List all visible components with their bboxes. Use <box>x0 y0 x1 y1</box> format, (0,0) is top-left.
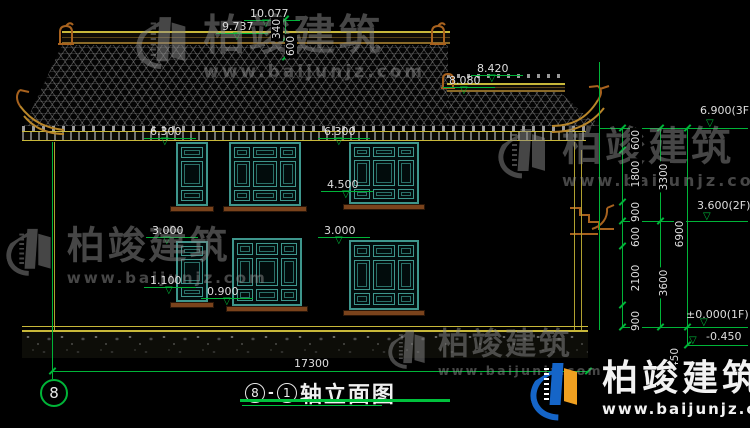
corner-logo-url: www.baijunjz.com <box>602 400 750 418</box>
right-level-label: 6.900(3F) <box>700 105 750 117</box>
window-pane <box>398 260 414 290</box>
dim-text: 900 <box>630 200 642 224</box>
window-pane <box>398 245 414 257</box>
lattice-window <box>229 142 301 206</box>
porch-bracket-icon <box>568 200 618 248</box>
window-pane <box>256 289 279 301</box>
level-label: 6.300 <box>150 126 182 138</box>
lattice-window <box>349 142 419 204</box>
window-pane <box>181 147 203 158</box>
baijun-watermark: 柏竣建筑www.baijunjz.com <box>6 226 268 287</box>
window-pane <box>373 147 396 157</box>
window-pane <box>354 260 370 290</box>
baijun-watermark: 柏竣建筑www.baijunjz.com <box>498 126 750 190</box>
level-triangle-icon: ▽ <box>689 336 697 346</box>
right-level-label: ±0.000(1F) <box>686 309 749 321</box>
level-triangle-icon: ▽ <box>223 297 231 307</box>
dim-text: 1800 <box>630 159 642 190</box>
title-underline-thin <box>242 405 382 406</box>
window-pane <box>253 190 277 201</box>
window-pane <box>354 293 370 305</box>
window-pane <box>237 289 253 301</box>
left-eave-tip-icon <box>12 84 66 136</box>
window-pane <box>373 293 396 305</box>
dim-text: 900 <box>630 309 642 333</box>
level-label: 9.737 <box>222 21 254 33</box>
window-sill <box>226 306 308 312</box>
window-pane <box>234 147 250 158</box>
level-label: 3.000 <box>324 225 356 237</box>
window-pane <box>398 147 414 157</box>
window-sill <box>343 204 425 210</box>
window-pane <box>373 260 396 290</box>
window-pane <box>281 258 297 287</box>
window-pane <box>281 243 297 255</box>
window-pane <box>181 190 203 201</box>
level-line <box>318 138 370 139</box>
axis-bubble-8: 8 <box>40 379 68 407</box>
level-line <box>144 138 196 139</box>
level-triangle-icon: ▽ <box>165 286 173 296</box>
window-pane <box>398 160 414 185</box>
ridge-ornament-left-icon <box>56 20 76 46</box>
baijun-logo-icon <box>136 14 193 73</box>
window-pane <box>373 160 396 185</box>
dim-text: 600 <box>630 225 642 249</box>
window-pane <box>354 245 370 257</box>
level-line <box>318 237 370 238</box>
window-pane <box>280 190 296 201</box>
ridge-ornament-right-icon <box>428 20 448 46</box>
dim-text: 6900 <box>674 219 686 250</box>
level-label: 0.900 <box>207 286 239 298</box>
level-label: 8.080 <box>449 75 481 87</box>
window-pane <box>253 161 277 187</box>
level-triangle-icon: ▽ <box>161 137 169 147</box>
baijun-corner-logo: 柏竣建筑 www.baijunjz.com <box>530 360 750 424</box>
window-sill <box>170 206 214 212</box>
corner-logo-brand: 柏竣建筑 <box>602 360 750 398</box>
window-pane <box>354 147 370 157</box>
level-triangle-icon: ▽ <box>335 236 343 246</box>
level-triangle-icon: ▽ <box>460 86 468 96</box>
dim-text: 600 <box>285 34 297 58</box>
window-pane <box>280 147 296 158</box>
window-sill <box>223 206 307 212</box>
watermark-url: www.baijunjz.com <box>562 171 750 190</box>
baijun-logo-icon <box>388 328 430 372</box>
lattice-window <box>349 240 419 310</box>
window-pane <box>281 289 297 301</box>
overall-dim-text: 17300 <box>294 358 329 370</box>
dim-text: 3600 <box>658 268 670 299</box>
level-triangle-icon: ▽ <box>703 212 711 222</box>
level-label: 8.420 <box>477 63 509 75</box>
watermark-brand: 柏竣建筑 <box>562 126 750 168</box>
level-label: 4.500 <box>327 179 359 191</box>
window-pane <box>373 189 396 199</box>
window-pane <box>373 245 396 257</box>
level-line <box>443 87 495 88</box>
title-underline-thick <box>240 399 450 402</box>
dim-text: 2100 <box>630 263 642 294</box>
window-sill <box>343 310 425 316</box>
window-pane <box>398 293 414 305</box>
right-level-label: 3.600(2F) <box>697 200 750 212</box>
baijun-logo-icon <box>498 126 552 182</box>
elevation-drawing-canvas: 17300 8 8 - 1 轴立面图 柏竣建筑 www.baijunjz.com… <box>0 0 750 428</box>
baijun-logo-icon <box>6 226 57 279</box>
lattice-window <box>176 142 208 206</box>
window-pane <box>181 161 203 187</box>
watermark-url: www.baijunjz.com <box>203 61 425 81</box>
dim-text: 600 <box>630 128 642 152</box>
baijun-logo-icon <box>530 360 594 424</box>
level-triangle-icon: ▽ <box>335 137 343 147</box>
window-pane <box>253 147 277 158</box>
watermark-brand: 柏竣建筑 <box>438 328 603 361</box>
dim-text: 340 <box>271 17 283 41</box>
level-label: 3.000 <box>152 225 184 237</box>
dim-line <box>599 62 600 330</box>
window-pane <box>234 190 250 201</box>
dim-text: 3300 <box>658 162 670 193</box>
window-pane <box>234 161 250 187</box>
level-triangle-icon: ▽ <box>488 74 496 84</box>
window-pane <box>398 189 414 199</box>
window-pane <box>280 161 296 187</box>
window-pane <box>181 287 203 297</box>
level-triangle-icon: ▽ <box>342 190 350 200</box>
level-label: 6.300 <box>324 126 356 138</box>
window-sill <box>170 302 214 308</box>
level-label: 1.100 <box>150 275 182 287</box>
right-level-label: -0.450 <box>706 331 741 343</box>
